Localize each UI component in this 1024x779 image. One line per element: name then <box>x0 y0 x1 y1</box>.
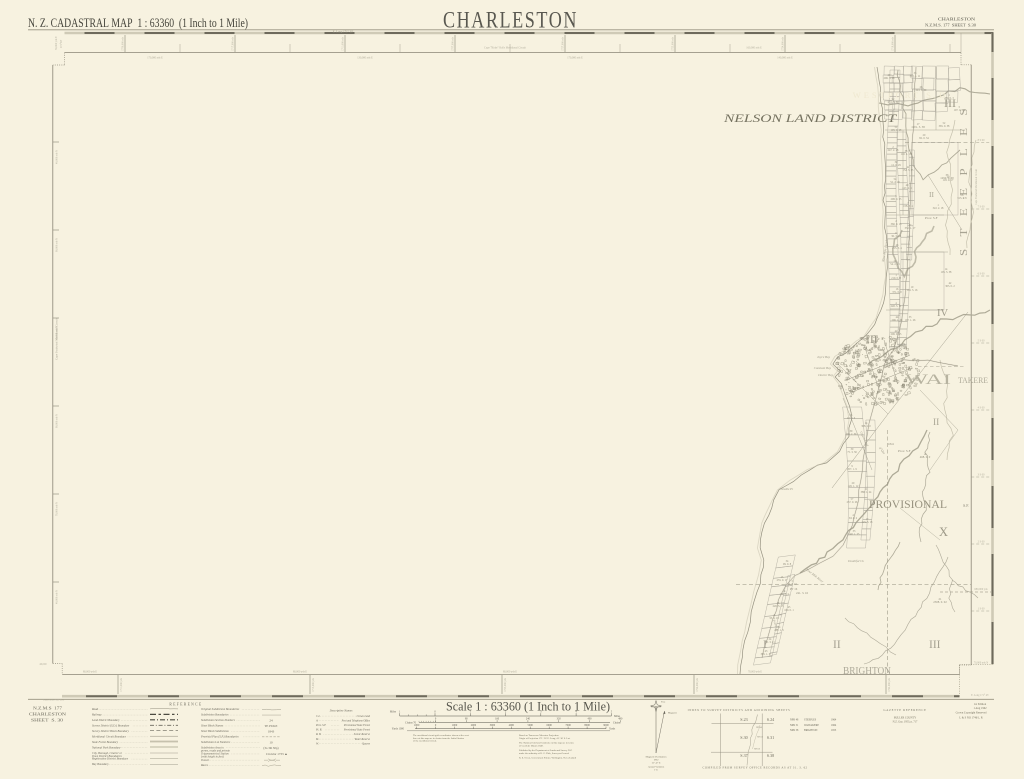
svg-text:Bay Boundary: Bay Boundary <box>92 762 109 766</box>
svg-text:III: III <box>866 334 878 346</box>
svg-text:BRIGHTON: BRIGHTON <box>804 729 817 732</box>
svg-text:36. 3. 24: 36. 3. 24 <box>891 235 901 238</box>
svg-text:Railway: Railway <box>91 713 102 717</box>
svg-text:126. 1. 12: 126. 1. 12 <box>848 485 859 488</box>
svg-text:SHEET S. 30: SHEET S. 30 <box>31 718 64 723</box>
svg-text:NPR 48: NPR 48 <box>790 719 799 722</box>
svg-text:Road: Road <box>91 707 99 711</box>
svg-text:4000: 4000 <box>509 724 515 727</box>
svg-text:365. 0. 38: 365. 0. 38 <box>939 125 950 128</box>
svg-text:110. 1. 18: 110. 1. 18 <box>901 153 912 156</box>
svg-text:2 S 00: 2 S 00 <box>978 541 986 544</box>
svg-text:WAITAKERE: WAITAKERE <box>804 724 819 727</box>
svg-text:241. 3. 16: 241. 3. 16 <box>796 591 809 595</box>
svg-text:70,000 yds E: 70,000 yds E <box>748 671 762 674</box>
svg-text:STEEPLES: STEEPLES <box>959 96 970 256</box>
svg-text:322. 2. 18: 322. 2. 18 <box>933 207 944 210</box>
svg-text:680,000 yds: 680,000 yds <box>974 588 987 591</box>
svg-text:360. 0. 13: 360. 0. 13 <box>891 223 902 226</box>
svg-text:Cape Foulwind Meridional Circu: Cape Foulwind Meridional Circuit <box>55 318 59 360</box>
svg-text:II: II <box>929 190 934 199</box>
svg-text:130,000 yds E: 130,000 yds E <box>357 57 373 60</box>
svg-text:TE PUKE: TE PUKE <box>264 724 277 728</box>
svg-text:III: III <box>929 639 941 651</box>
svg-text:6000: 6000 <box>547 724 553 727</box>
svg-text:Survey District Block Boundary: Survey District Block Boundary <box>92 729 130 733</box>
svg-text:119. 3. 16: 119. 3. 16 <box>907 289 918 292</box>
svg-text:105. 3. 38: 105. 3. 38 <box>941 271 952 274</box>
svg-text:371. 0. 0: 371. 0. 0 <box>892 291 902 294</box>
svg-text:N.Z.M.S. 177 SHEET S.30: N.Z.M.S. 177 SHEET S.30 <box>925 23 977 28</box>
svg-text:47. 0. 5: 47. 0. 5 <box>847 417 856 420</box>
svg-text:2000: 2000 <box>471 724 477 727</box>
svg-text:NPR 51: NPR 51 <box>757 737 763 739</box>
svg-text:of the meridional circuit.: of the meridional circuit. <box>413 740 437 743</box>
svg-text:160,000 yds E: 160,000 yds E <box>746 47 762 50</box>
svg-text:1724,000 yds: 1724,000 yds <box>696 678 699 692</box>
svg-text:206. 0. 25: 206. 0. 25 <box>891 333 902 336</box>
svg-text:30,000 yds E: 30,000 yds E <box>55 36 58 50</box>
svg-text:BRIGHTON: BRIGHTON <box>843 666 891 677</box>
svg-text:Tunnel: Tunnel <box>201 758 209 762</box>
svg-text:1843: 1843 <box>268 730 275 734</box>
svg-text:12. 0. 29: 12. 0. 29 <box>891 164 901 167</box>
svg-text:Circular 1733 ▲: Circular 1733 ▲ <box>266 752 288 756</box>
svg-text:2308. 0. 02: 2308. 0. 02 <box>933 600 947 604</box>
svg-text:INDEX TO SURVEY DISTRICTS AND: INDEX TO SURVEY DISTRICTS AND ADJOINING … <box>688 708 791 712</box>
svg-text:NPR 58: NPR 58 <box>790 729 799 732</box>
svg-text:True: True <box>661 701 665 704</box>
svg-text:WAI: WAI <box>905 372 951 388</box>
svg-text:9000: 9000 <box>603 724 609 727</box>
svg-text:298. 0. 25: 298. 0. 25 <box>891 198 902 201</box>
svg-text:8000: 8000 <box>584 724 590 727</box>
svg-text:198. 2. 39: 198. 2. 39 <box>846 433 857 436</box>
svg-text:160: 160 <box>495 718 500 721</box>
svg-text:1′ E: 1′ E <box>654 769 658 772</box>
svg-text:S.37: S.37 <box>740 753 747 758</box>
svg-text:Subdivision Lot Numbers: Subdivision Lot Numbers <box>201 740 231 744</box>
svg-text:1964: 1964 <box>831 719 837 722</box>
svg-text:II: II <box>833 639 841 651</box>
svg-text:10: 10 <box>269 741 273 745</box>
svg-text:Sheet Block Names: Sheet Block Names <box>201 724 224 728</box>
svg-text:310. 1. 11: 310. 1. 11 <box>910 75 921 78</box>
svg-text:Subdivision Section Numbers: Subdivision Section Numbers <box>201 718 236 722</box>
svg-text:National Park Boundary: National Park Boundary <box>91 745 121 749</box>
svg-text:PROVISIONAL: PROVISIONAL <box>869 497 947 511</box>
svg-text:N.Z.M.S 177: N.Z.M.S 177 <box>33 706 63 711</box>
svg-text:1711,000 yds: 1711,000 yds <box>342 37 345 51</box>
svg-text:4 S 00: 4 S 00 <box>978 407 986 410</box>
svg-text:S.30: S.30 <box>740 735 747 740</box>
svg-text:308. 1. 0: 308. 1. 0 <box>861 425 871 428</box>
svg-text:1 Aug 1962: 1 Aug 1962 <box>973 707 987 710</box>
svg-text:1841: 1841 <box>888 442 895 446</box>
svg-text:S.23: S.23 <box>740 717 747 722</box>
svg-text:8 S 00: 8 S 00 <box>978 139 986 142</box>
svg-text:Survey District (S.D.) Boundar: Survey District (S.D.) Boundary <box>92 724 130 728</box>
svg-text:80,000 yds E: 80,000 yds E <box>503 671 517 674</box>
svg-text:S.F.: S.F. <box>963 503 969 508</box>
svg-text:Prov. S.F: Prov. S.F <box>925 216 938 220</box>
svg-text:19. 3. 22: 19. 3. 22 <box>787 583 797 586</box>
svg-text:75. 3. 36: 75. 3. 36 <box>847 451 857 454</box>
svg-text:332. 1. 17: 332. 1. 17 <box>905 227 916 230</box>
svg-text:172°30′: 172°30′ <box>60 39 63 48</box>
svg-text:5000: 5000 <box>528 724 534 727</box>
svg-text:Crown Land: Crown Land <box>357 715 371 718</box>
svg-text:1953: 1953 <box>831 729 837 732</box>
svg-text:Cape Foulwind Meridional Circu: Cape Foulwind Meridional Circuit <box>975 169 978 205</box>
svg-text:Water Reserve: Water Reserve <box>355 738 371 741</box>
svg-text:TAKERE: TAKERE <box>958 375 988 385</box>
svg-text:1727,000 yds: 1727,000 yds <box>562 37 565 51</box>
svg-text:70,000 yds N: 70,000 yds N <box>56 502 59 516</box>
svg-text:400: 400 <box>587 718 592 721</box>
svg-text:Doctor Bay: Doctor Bay <box>817 373 833 377</box>
svg-text:255. 0. 17: 255. 0. 17 <box>777 579 788 582</box>
svg-text:1000: 1000 <box>452 724 458 727</box>
svg-text:Constant Bay: Constant Bay <box>814 366 832 370</box>
svg-text:207. 1. 9: 207. 1. 9 <box>847 468 857 471</box>
svg-text:40,000: 40,000 <box>39 663 47 666</box>
svg-text:219. 0. 8: 219. 0. 8 <box>891 277 901 280</box>
svg-text:220. 3. 15: 220. 3. 15 <box>773 605 784 608</box>
svg-text:of Geodetic Datum 1949.: of Geodetic Datum 1949. <box>519 744 544 747</box>
svg-text:296. 3. 28: 296. 3. 28 <box>884 77 895 80</box>
svg-text:Meridional Circuit Boundary: Meridional Circuit Boundary <box>91 734 127 738</box>
svg-text:140. 1. 25: 140. 1. 25 <box>849 533 860 536</box>
svg-text:Pt. R.: Pt. R. <box>315 729 322 732</box>
svg-text:388. 1. 24: 388. 1. 24 <box>861 491 872 494</box>
svg-text:Doubtful Ck: Doubtful Ck <box>847 559 864 563</box>
svg-text:7000: 7000 <box>565 724 571 727</box>
svg-text:1742,000 yds: 1742,000 yds <box>888 678 891 692</box>
svg-text:80,000 yds N: 80,000 yds N <box>56 238 59 252</box>
svg-text:BULLER COUNTY: BULLER COUNTY <box>894 717 916 720</box>
svg-text:1750,000 yds: 1750,000 yds <box>122 37 125 51</box>
svg-text:Origin of Projection 171° 30′: Origin of Projection 171° 30′ E. Long. 4… <box>519 737 571 740</box>
svg-text:105. 0. 28: 105. 0. 28 <box>891 129 902 132</box>
svg-text:114. 0. 4: 114. 0. 4 <box>779 593 789 596</box>
svg-text:1724,000 yds: 1724,000 yds <box>782 37 785 51</box>
svg-text:24: 24 <box>269 719 273 723</box>
svg-text:3 S 00: 3 S 00 <box>978 474 986 477</box>
svg-text:1000: 1000 <box>414 724 420 727</box>
svg-text:Crown Copyright Reserved: Crown Copyright Reserved <box>956 712 987 715</box>
svg-text:17: 17 <box>963 196 967 200</box>
svg-text:Prov. S.F.: Prov. S.F. <box>315 724 327 727</box>
svg-text:Provisional State Forest: Provisional State Forest <box>343 729 370 732</box>
svg-text:Registration District Boundary: Registration District Boundary <box>91 757 129 761</box>
svg-text:Sheet Block Subdivision: Sheet Block Subdivision <box>201 729 229 733</box>
svg-text:Provisial Plan (S.P.) Boundari: Provisial Plan (S.P.) Boundaries <box>200 734 240 738</box>
svg-text:80,000 yds E: 80,000 yds E <box>293 671 307 674</box>
svg-text:247. 2. 28: 247. 2. 28 <box>888 149 899 152</box>
svg-text:80,000 yds N: 80,000 yds N <box>56 414 59 428</box>
svg-text:Yards 1000: Yards 1000 <box>392 728 405 731</box>
svg-text:I: I <box>763 639 767 651</box>
svg-text:63. 0. 2: 63. 0. 2 <box>849 517 858 520</box>
svg-text:COMPILED FROM SURVEY OFFICE RE: COMPILED FROM SURVEY OFFICE RECORDS AS A… <box>702 766 807 770</box>
svg-text:Cape “Rider” Rolls Meridional: Cape “Rider” Rolls Meridional Circuit <box>484 47 526 50</box>
svg-text:Miles: Miles <box>390 711 396 714</box>
svg-text:1757,000 yds: 1757,000 yds <box>452 37 455 51</box>
svg-text:3000: 3000 <box>490 724 496 727</box>
svg-text:N. Z. CADASTRAL MAP 1 : 63360: N. Z. CADASTRAL MAP 1 : 63360 (1 Inch to… <box>28 16 248 30</box>
svg-text:468. 0. 0: 468. 0. 0 <box>920 455 931 459</box>
svg-text:NPR 58: NPR 58 <box>754 749 760 751</box>
svg-text:82. 0. 34: 82. 0. 34 <box>919 137 929 140</box>
svg-text:140,000 yds E: 140,000 yds E <box>777 57 793 60</box>
svg-text:X: X <box>939 525 948 539</box>
svg-text:70,000 yds N: 70,000 yds N <box>974 661 988 664</box>
svg-text:Yards: Yards <box>609 728 615 731</box>
svg-text:1 S 00: 1 S 00 <box>978 608 986 611</box>
svg-text:13° 47′ E: 13° 47′ E <box>652 762 661 765</box>
svg-text:Needle Pt: Needle Pt <box>780 487 794 491</box>
svg-text:W.: W. <box>316 742 319 745</box>
svg-text:1717,000 yds: 1717,000 yds <box>232 37 235 51</box>
svg-text:80,000 yds E: 80,000 yds E <box>83 671 97 674</box>
svg-text:99. 0. 8: 99. 0. 8 <box>783 563 792 566</box>
svg-text:1294. 0. 00: 1294. 0. 00 <box>940 176 954 180</box>
svg-text:1715,000 yds: 1715,000 yds <box>312 678 315 692</box>
svg-text:Races: Races <box>200 763 209 767</box>
svg-text:1001. 3. 38: 1001. 3. 38 <box>911 125 925 129</box>
svg-text:272. 3. 39: 272. 3. 39 <box>888 101 899 104</box>
svg-text:158. 3. 4: 158. 3. 4 <box>903 205 913 208</box>
svg-text:N.Z. Gaz. 1953, p. 717: N.Z. Gaz. 1953, p. 717 <box>893 720 918 723</box>
svg-text:CHARLESTON: CHARLESTON <box>443 8 578 33</box>
svg-text:C.L.: C.L. <box>316 715 321 718</box>
svg-text:Chains: Chains <box>613 721 620 724</box>
svg-text:NPR 51: NPR 51 <box>790 724 799 727</box>
svg-text:Quarry: Quarry <box>362 742 371 745</box>
svg-text:R. B.: R. B. <box>315 733 322 736</box>
svg-text:REFERENCE: REFERENCE <box>169 703 202 707</box>
svg-text:1964: 1964 <box>831 724 837 727</box>
svg-text:IV: IV <box>937 308 948 319</box>
svg-text:320: 320 <box>557 718 562 721</box>
svg-text:State Forest Boundary: State Forest Boundary <box>92 740 119 744</box>
svg-text:213. 3. 4: 213. 3. 4 <box>892 247 902 250</box>
svg-text:Provisional State Forest: Provisional State Forest <box>343 724 370 727</box>
svg-text:E. Long 171° 45′: E. Long 171° 45′ <box>971 694 989 697</box>
svg-text:Printed at the N.Z. Govt: Printed at the N.Z. Govt <box>43 700 65 702</box>
svg-text:305. 0. 2: 305. 0. 2 <box>945 285 955 288</box>
svg-text:S.31: S.31 <box>767 735 774 740</box>
svg-text:Land District Boundary: Land District Boundary <box>91 718 120 722</box>
svg-text:S.24: S.24 <box>767 717 774 722</box>
svg-text:1718,000 yds: 1718,000 yds <box>892 37 895 51</box>
svg-text:under the authority of R. G. D: under the authority of R. G. Dick, Surve… <box>519 752 569 755</box>
svg-text:NPR 48: NPR 48 <box>756 727 762 729</box>
svg-text:WESTPORT S.D.: WESTPORT S.D. <box>853 90 954 100</box>
svg-text:CHARLESTON: CHARLESTON <box>938 17 976 22</box>
svg-text:L & S NO 1746/1, R: L & S NO 1746/1, R <box>959 717 982 720</box>
svg-text:127. 2. 1: 127. 2. 1 <box>902 187 912 190</box>
svg-text:Subdivision Boundaries: Subdivision Boundaries <box>201 713 229 717</box>
svg-text:Joyce Bay: Joyce Bay <box>817 355 831 359</box>
svg-text:40,000 yds N: 40,000 yds N <box>56 590 59 604</box>
svg-text:385. 1. 37: 385. 1. 37 <box>761 653 772 656</box>
svg-text:A: A <box>315 719 318 722</box>
svg-text:STEEPLES: STEEPLES <box>804 719 817 722</box>
svg-text:107. 1. 26: 107. 1. 26 <box>905 319 916 322</box>
svg-text:225. 3. 18: 225. 3. 18 <box>862 521 873 524</box>
svg-text:NELSON LAND DISTRICT: NELSON LAND DISTRICT <box>723 111 898 125</box>
svg-text:Prov. S.F: Prov. S.F <box>898 449 911 453</box>
svg-text:170,000 yds E: 170,000 yds E <box>147 57 163 60</box>
svg-text:1723,000 yds: 1723,000 yds <box>504 678 507 692</box>
svg-text:GAZETTE REFERENCE: GAZETTE REFERENCE <box>883 708 926 712</box>
svg-text:Descriptive Names: Descriptive Names <box>329 709 354 713</box>
svg-text:1711,000 yds: 1711,000 yds <box>120 678 123 692</box>
svg-text:5 S 00: 5 S 00 <box>978 340 986 343</box>
svg-text:M.: M. <box>315 738 319 741</box>
svg-text:II: II <box>933 418 939 428</box>
svg-text:40,000 yds N: 40,000 yds N <box>56 150 59 164</box>
svg-text:E. Long 171° 30′: E. Long 171° 30′ <box>333 30 354 34</box>
svg-text:Post and Telephone Office: Post and Telephone Office <box>341 719 371 722</box>
svg-text:1st Edition: 1st Edition <box>974 703 987 706</box>
svg-text:R. E. Owen, Government Printer: R. E. Owen, Government Printer, Wellingt… <box>519 756 577 759</box>
svg-text:7 S 00: 7 S 00 <box>978 206 986 209</box>
svg-text:CHARLESTON: CHARLESTON <box>29 712 67 717</box>
svg-text:170,000 yds E: 170,000 yds E <box>567 57 583 60</box>
svg-text:6 S 00: 6 S 00 <box>978 273 986 276</box>
svg-text:1725,000 yds: 1725,000 yds <box>672 37 675 51</box>
svg-text:169. 0. 1: 169. 0. 1 <box>784 609 794 612</box>
svg-text:52. 2. 20: 52. 2. 20 <box>890 181 900 184</box>
svg-text:240: 240 <box>526 718 531 721</box>
svg-text:Scenic Reserve: Scenic Reserve <box>354 733 371 736</box>
svg-text:480: 480 <box>618 718 623 721</box>
svg-text:257. 0. 26: 257. 0. 26 <box>847 501 858 504</box>
svg-text:152. 3. 35: 152. 3. 35 <box>903 169 914 172</box>
svg-text:S.38: S.38 <box>767 753 774 758</box>
svg-text:Original Subdivision Boundarie: Original Subdivision Boundaries <box>201 707 240 711</box>
svg-text:(3a 3R 30p): (3a 3R 30p) <box>263 746 278 750</box>
svg-text:248. 3. 11: 248. 3. 11 <box>891 305 902 308</box>
svg-text:296. 1. 28: 296. 1. 28 <box>892 319 903 322</box>
svg-text:Magnetic: Magnetic <box>668 712 677 715</box>
svg-text:54. 2. 21: 54. 2. 21 <box>890 263 900 266</box>
